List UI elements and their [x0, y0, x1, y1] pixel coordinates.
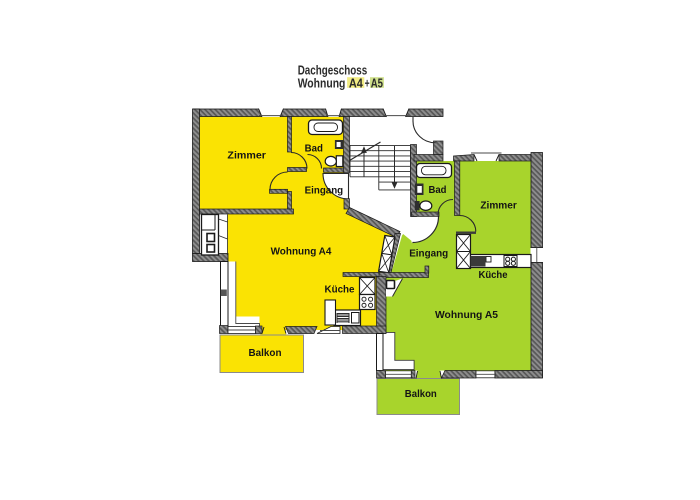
svg-text:Bad: Bad: [305, 142, 323, 154]
svg-text:Küche: Küche: [325, 283, 355, 295]
svg-text:Eingang: Eingang: [305, 184, 344, 196]
svg-text:Küche: Küche: [479, 269, 508, 281]
svg-text:A5: A5: [371, 75, 383, 90]
svg-text:A4: A4: [349, 75, 364, 90]
svg-text:Eingang: Eingang: [409, 248, 448, 260]
svg-text:Balkon: Balkon: [249, 347, 282, 359]
svg-text:+: +: [365, 75, 370, 90]
svg-text:Wohnung A5: Wohnung A5: [435, 309, 498, 321]
svg-text:Balkon: Balkon: [405, 388, 437, 400]
svg-text:Wohnung: Wohnung: [298, 75, 346, 90]
svg-text:Wohnung A4: Wohnung A4: [271, 245, 332, 257]
svg-text:Bad: Bad: [429, 184, 447, 196]
svg-text:Zimmer: Zimmer: [480, 199, 517, 211]
svg-text:Zimmer: Zimmer: [227, 150, 266, 162]
